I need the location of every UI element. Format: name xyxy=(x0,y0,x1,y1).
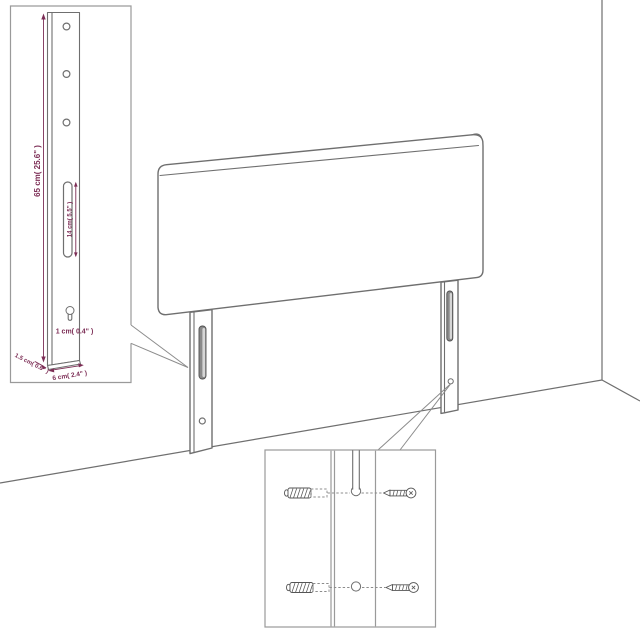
dim-label-thickness: 1.5 cm( 0.6" ) xyxy=(14,353,50,375)
left-leg-hole xyxy=(199,418,205,424)
diagram-svg: 65 cm( 25.6" ) 14 cm( 5.5" ) 1 cm( 0.4" … xyxy=(0,0,640,640)
inset-leg-hole-3 xyxy=(63,119,70,126)
dim-label-hole: 1 cm( 0.4" ) xyxy=(56,329,94,336)
right-leg-hole xyxy=(448,379,453,384)
right-leg-slot-highlight xyxy=(450,293,452,339)
left-leg-slot-highlight xyxy=(202,328,205,377)
inset-leg-hole-2 xyxy=(63,71,70,78)
screw-inset-border xyxy=(265,450,436,627)
floor-line-right xyxy=(602,380,640,401)
callout-leaders xyxy=(131,325,451,450)
dim-arrow-width-right xyxy=(78,363,84,367)
dim-arrow-up xyxy=(41,14,45,20)
inset-leg-hole-1 xyxy=(63,23,70,30)
dim-label-slot: 14 cm( 5.5" ) xyxy=(68,202,74,238)
leg-detail-leader-bottom xyxy=(131,343,188,367)
dim-label-leg-height: 65 cm( 25.6" ) xyxy=(33,145,42,197)
leg-dimension-inset: 65 cm( 25.6" ) 14 cm( 5.5" ) 1 cm( 0.4" … xyxy=(11,6,132,383)
leg-detail-leader-top xyxy=(131,325,188,368)
headboard-dimension-diagram: 65 cm( 25.6" ) 14 cm( 5.5" ) 1 cm( 0.4" … xyxy=(0,0,640,640)
screw-detail-inset xyxy=(265,450,436,627)
screw-detail-leader-right xyxy=(400,384,451,450)
inset-keyhole-circle xyxy=(66,307,74,315)
inset-slot-bulb-mask xyxy=(353,484,359,490)
inset-round-hole xyxy=(351,582,360,591)
dim-arrow-down xyxy=(41,357,45,363)
headboard-panel-outline xyxy=(158,135,483,315)
dim-label-width: 6 cm( 2.4" ) xyxy=(52,370,88,382)
headboard-panel xyxy=(158,134,483,315)
